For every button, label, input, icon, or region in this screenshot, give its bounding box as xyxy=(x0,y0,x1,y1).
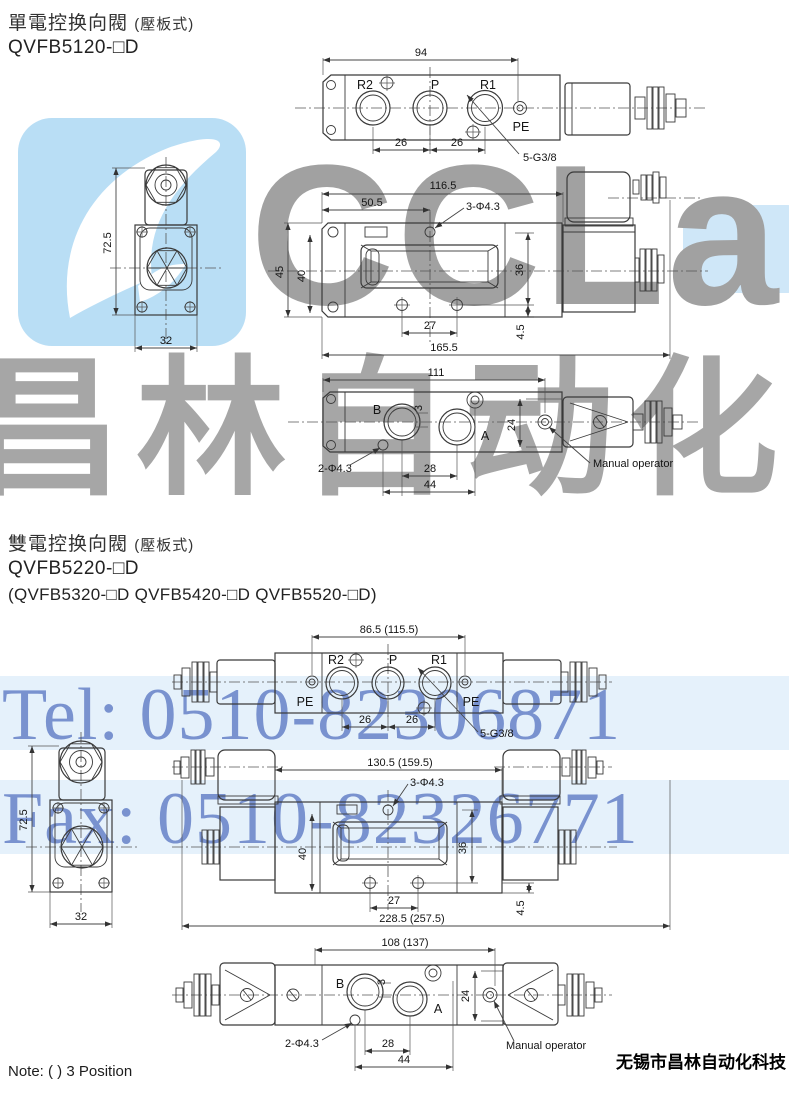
port-label-r1: R1 xyxy=(480,78,496,92)
dim-40: 40 xyxy=(296,270,308,282)
section1-title-paren: (壓板式) xyxy=(134,16,194,33)
port-label-r1: R1 xyxy=(431,653,447,667)
section2-model: QVFB5220-□D xyxy=(8,558,139,580)
dim-111: 111 xyxy=(428,367,445,379)
dim-86-5: 86.5 (115.5) xyxy=(360,624,419,636)
holes-callout: 3-Φ4.3 xyxy=(410,777,444,789)
dim-40: 40 xyxy=(297,848,309,860)
s1-bottom-view-drawing: B A 3 24 Manual operator 111 2-Φ4.3 xyxy=(288,363,708,508)
valve-body-side xyxy=(322,223,562,317)
right-coil-bottom xyxy=(503,963,602,1025)
footer-note: Note: ( ) 3 Position xyxy=(8,1063,132,1080)
dim-27: 27 xyxy=(424,320,436,332)
dim-3: 3 xyxy=(376,979,388,985)
dim-4-5: 4.5 xyxy=(515,324,527,339)
dim-44: 44 xyxy=(398,1054,410,1066)
thread-callout: 5-G3/8 xyxy=(480,728,514,740)
dim-26a: 26 xyxy=(395,137,407,149)
dim-36: 36 xyxy=(457,842,469,854)
dim-26b: 26 xyxy=(451,137,463,149)
section2-title-paren: (壓板式) xyxy=(134,537,194,554)
s1-end-view-drawing: 72.5 32 xyxy=(102,155,232,370)
solenoid-coil-side xyxy=(563,172,666,312)
s1-top-view-drawing: R2 P R1 PE 94 26 26 5-G3/8 xyxy=(295,45,789,175)
dim-24: 24 xyxy=(460,990,472,1002)
dim-165-5: 165.5 xyxy=(430,342,458,354)
holes-callout-2: 2-Φ4.3 xyxy=(318,463,352,475)
section1-model: QVFB5120-□D xyxy=(8,37,139,59)
s2-side-view-drawing: 130.5 (159.5) 3-Φ4.3 40 36 4.5 27 228.5 … xyxy=(172,750,789,938)
port-label-p: P xyxy=(431,78,439,92)
port-label-pe-right: PE xyxy=(463,695,480,709)
s1-side-view-drawing: 116.5 50.5 3-Φ4.3 45 40 36 4.5 27 165.5 xyxy=(268,172,713,367)
dim-32: 32 xyxy=(75,911,87,923)
datasheet-page: CCLair 昌林自动化 Tel: 0510-82306871 Fax: 051… xyxy=(0,0,789,1096)
left-coil-side xyxy=(174,750,278,880)
holes-callout: 3-Φ4.3 xyxy=(466,201,500,213)
port-label-b: B xyxy=(336,977,344,991)
dim-24: 24 xyxy=(506,419,518,431)
right-coil-side xyxy=(500,750,603,880)
dim-32: 32 xyxy=(160,335,172,347)
dim-36: 36 xyxy=(514,264,526,276)
port-label-r2: R2 xyxy=(328,653,344,667)
holes-callout-2: 2-Φ4.3 xyxy=(285,1038,319,1050)
dim-4-5: 4.5 xyxy=(515,900,527,915)
dim-45: 45 xyxy=(274,266,286,278)
section1-title-main: 單電控换向閥 xyxy=(8,13,128,34)
dim-116-5: 116.5 xyxy=(430,180,457,192)
port-label-a: A xyxy=(481,429,490,443)
dim-26b: 26 xyxy=(406,714,418,726)
s2-end-view-drawing: 72.5 32 xyxy=(22,712,157,940)
dim-130-5: 130.5 (159.5) xyxy=(367,757,432,769)
port-label-a: A xyxy=(434,1002,443,1016)
footer-company: 无锡市昌林自动化科技 xyxy=(616,1048,786,1073)
port-label-pe: PE xyxy=(513,120,530,134)
section2-alt-models: (QVFB5320-□D QVFB5420-□D QVFB5520-□D) xyxy=(8,585,377,605)
dim-44: 44 xyxy=(424,479,436,491)
dim-27: 27 xyxy=(388,895,400,907)
s2-top-view-drawing: R2 P R1 PE PE 86.5 (115.5) 26 26 5-G3/8 xyxy=(172,620,789,748)
dim-28: 28 xyxy=(382,1038,394,1050)
section2-title: 雙電控换向閥 (壓板式) xyxy=(8,529,194,556)
dim-228-5: 228.5 (257.5) xyxy=(379,913,444,925)
dim-28: 28 xyxy=(424,463,436,475)
dim-72-5: 72.5 xyxy=(18,809,30,830)
dim-72-5: 72.5 xyxy=(102,232,114,253)
dim-3: 3 xyxy=(413,405,425,411)
section2-title-main: 雙電控换向閥 xyxy=(8,534,128,555)
coil-end xyxy=(59,741,105,800)
manual-operator-label: Manual operator xyxy=(506,1040,586,1052)
thread-callout: 5-G3/8 xyxy=(523,152,557,164)
dim-108: 108 (137) xyxy=(381,937,428,949)
manual-operator-label: Manual operator xyxy=(593,458,673,470)
dim-94: 94 xyxy=(415,47,427,59)
section1-title: 單電控换向閥 (壓板式) xyxy=(8,8,194,35)
solenoid-coil-top xyxy=(565,83,686,135)
port-label-pe-left: PE xyxy=(297,695,314,709)
dim-26a: 26 xyxy=(359,714,371,726)
port-label-p: P xyxy=(389,653,397,667)
left-coil-bottom xyxy=(176,963,275,1025)
dim-50-5: 50.5 xyxy=(361,197,382,209)
port-label-b: B xyxy=(373,403,381,417)
port-label-r2: R2 xyxy=(357,78,373,92)
